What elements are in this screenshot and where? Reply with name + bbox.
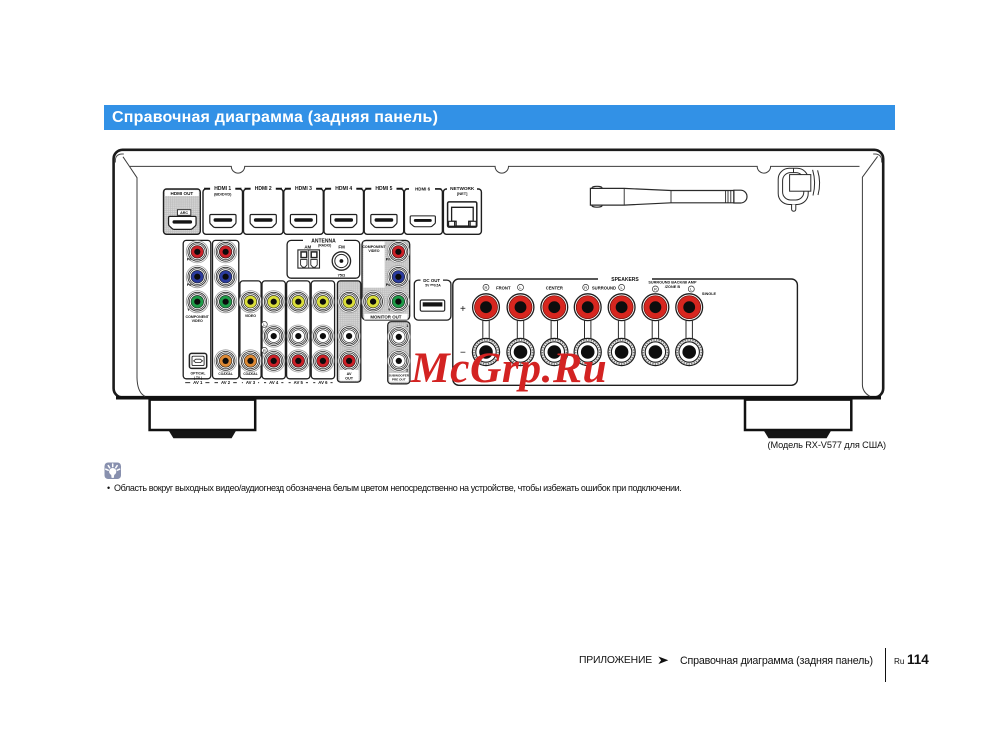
svg-text:MONITOR OUT: MONITOR OUT	[370, 315, 401, 320]
svg-text:AV 5: AV 5	[294, 380, 304, 385]
svg-text:OUT: OUT	[345, 377, 354, 381]
svg-text:SINGLE: SINGLE	[702, 292, 717, 296]
svg-text:VIDEO: VIDEO	[245, 314, 256, 318]
svg-text:PB: PB	[187, 282, 193, 287]
svg-text:FRONT: FRONT	[496, 285, 511, 290]
svg-text:HDMI 3: HDMI 3	[295, 186, 312, 192]
svg-text:PR: PR	[386, 256, 392, 261]
svg-text:(BD/DVD): (BD/DVD)	[214, 192, 232, 197]
svg-text:R: R	[485, 285, 488, 290]
svg-text:PRE OUT: PRE OUT	[392, 378, 406, 382]
svg-text:FM: FM	[338, 244, 345, 249]
svg-text:SPEAKERS: SPEAKERS	[611, 277, 639, 283]
svg-text:AV 6: AV 6	[318, 380, 328, 385]
svg-text:HDMI OUT: HDMI OUT	[171, 191, 194, 196]
svg-text:AV 2: AV 2	[221, 380, 231, 385]
svg-text:CENTER: CENTER	[546, 285, 563, 290]
svg-text:R: R	[584, 285, 587, 290]
svg-text:[NET]: [NET]	[457, 191, 468, 196]
svg-text:AV: AV	[347, 372, 352, 376]
svg-text:PB: PB	[386, 282, 392, 287]
svg-text:AV 3: AV 3	[246, 380, 256, 385]
svg-text:HDMI 5: HDMI 5	[375, 186, 392, 192]
svg-text:DC OUT: DC OUT	[423, 278, 440, 283]
svg-text:SURROUND BACK/BI AMP: SURROUND BACK/BI AMP	[648, 280, 697, 284]
svg-text:AV 4: AV 4	[269, 380, 279, 385]
svg-text:HDMI 6: HDMI 6	[415, 186, 430, 191]
svg-text:R: R	[263, 348, 266, 353]
svg-text:SURROUND: SURROUND	[592, 285, 616, 290]
svg-text:COAXIAL: COAXIAL	[218, 372, 232, 376]
svg-text:COAXIAL: COAXIAL	[243, 372, 257, 376]
svg-text:75Ω: 75Ω	[338, 272, 346, 277]
svg-text:+: +	[460, 304, 466, 315]
svg-text:HDMI 4: HDMI 4	[335, 186, 352, 192]
svg-text:AM: AM	[304, 244, 311, 249]
svg-text:/ZONE B: /ZONE B	[665, 285, 681, 289]
svg-text:Y: Y	[388, 307, 391, 312]
svg-text:AV 1: AV 1	[193, 380, 203, 385]
svg-text:ARC: ARC	[180, 211, 188, 215]
svg-text:0.5A: 0.5A	[434, 284, 442, 288]
svg-text:VIDEO: VIDEO	[192, 319, 203, 323]
svg-text:HDMI 2: HDMI 2	[255, 186, 272, 192]
svg-text:VIDEO: VIDEO	[368, 249, 379, 253]
svg-text:R: R	[654, 287, 657, 292]
svg-text:PR: PR	[187, 256, 193, 261]
svg-text:(RADIO): (RADIO)	[318, 243, 331, 247]
svg-text:Y: Y	[187, 307, 190, 312]
